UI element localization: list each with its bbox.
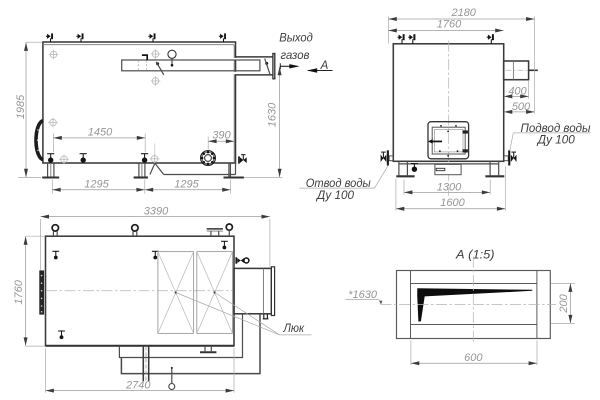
svg-text:1985: 1985 (15, 94, 27, 119)
svg-text:500: 500 (512, 101, 531, 113)
svg-text:Отвод воды: Отвод воды (306, 178, 372, 190)
svg-text:Люк: Люк (283, 323, 305, 335)
svg-text:Подвод воды: Подвод воды (521, 123, 592, 135)
svg-text:1300: 1300 (437, 181, 462, 193)
svg-text:А (1:5): А (1:5) (455, 250, 495, 262)
svg-text:1295: 1295 (84, 179, 109, 191)
svg-text:Выход: Выход (279, 33, 313, 45)
svg-text:Ду 100: Ду 100 (315, 190, 355, 202)
svg-text:2740: 2740 (125, 379, 151, 391)
svg-text:400: 400 (508, 86, 527, 98)
svg-text:1630: 1630 (267, 102, 279, 127)
svg-text:Ду 100: Ду 100 (536, 134, 576, 146)
svg-text:1295: 1295 (174, 179, 199, 191)
svg-text:1760: 1760 (437, 19, 462, 31)
svg-text:600: 600 (464, 352, 483, 364)
svg-text:200: 200 (558, 293, 570, 313)
svg-text:1760: 1760 (13, 279, 25, 304)
svg-text:1600: 1600 (440, 197, 465, 209)
svg-text:газов: газов (281, 50, 310, 62)
svg-text:3390: 3390 (144, 205, 169, 217)
svg-text:А: А (320, 60, 329, 72)
svg-text:1450: 1450 (88, 126, 113, 138)
svg-text:390: 390 (212, 130, 231, 142)
svg-text:2180: 2180 (450, 7, 476, 19)
